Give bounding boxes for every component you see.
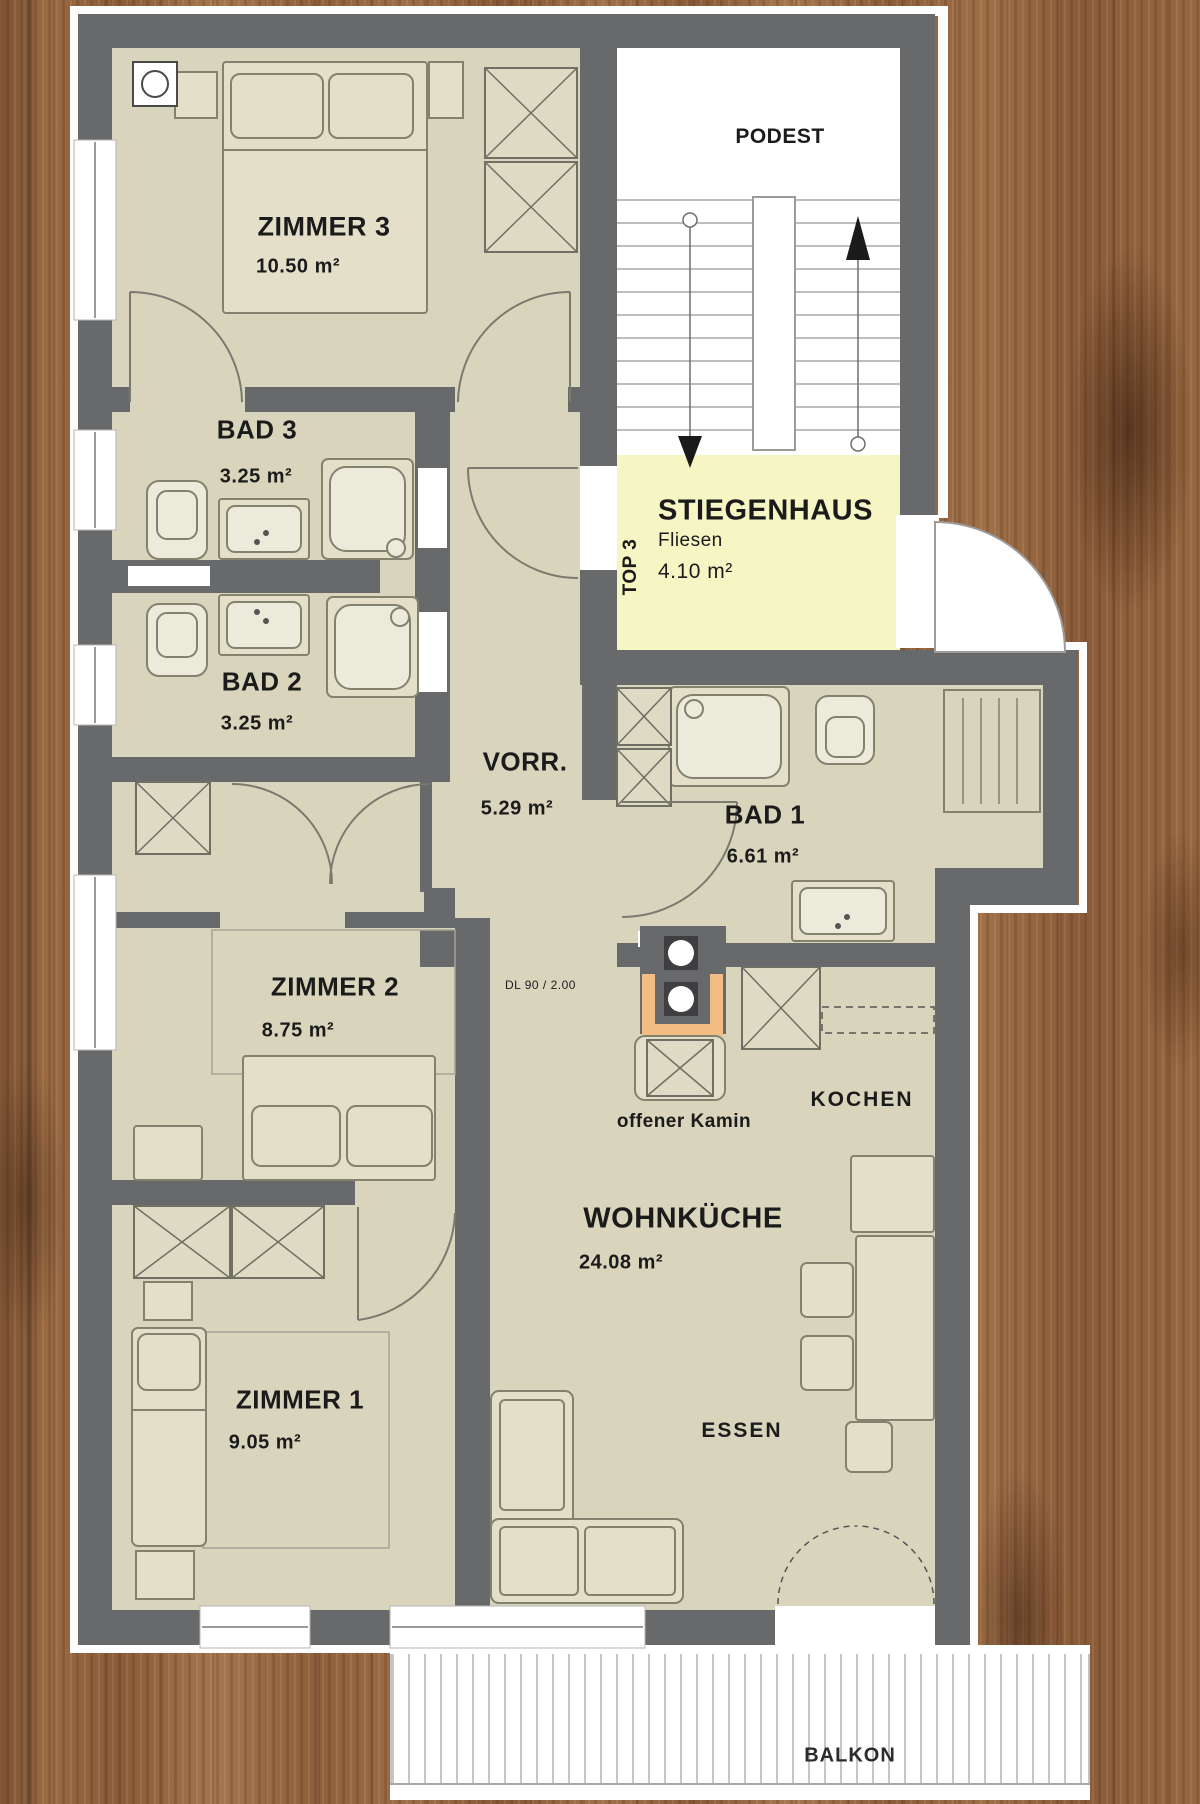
plan-geometry [0,0,1200,1804]
door-spec-label: DL 90 / 2.00 [505,978,576,992]
entry-door-swing [935,522,1065,652]
balcony-label: BALKON [804,1745,896,1768]
stairwell-finish: Fliesen [658,530,723,552]
room-area-bad3: 3.25 m² [220,466,292,489]
cooking-zone-label: KOCHEN [810,1088,913,1112]
dining-zone-label: ESSEN [701,1419,782,1443]
room-area-zimmer3: 10.50 m² [256,256,340,279]
room-area-wohnkueche: 24.08 m² [579,1252,663,1275]
room-area-zimmer2: 8.75 m² [262,1020,334,1043]
room-label-vorraum: VORR. [483,747,568,778]
room-label-wohnkueche: WOHNKÜCHE [583,1203,782,1236]
landing-label: PODEST [735,125,824,149]
room-label-bad2: BAD 2 [222,667,303,698]
room-label-zimmer2: ZIMMER 2 [271,972,399,1003]
room-label-bad1: BAD 1 [725,800,806,831]
unit-label-top3: TOP 3 [620,539,642,596]
room-label-zimmer3: ZIMMER 3 [257,212,390,243]
room-area-vorraum: 5.29 m² [481,798,553,821]
room-area-bad1: 6.61 m² [727,846,799,869]
room-area-zimmer1: 9.05 m² [229,1432,301,1455]
floor-plan: PODEST ZIMMER 3 10.50 m² BAD 3 3.25 m² S… [0,0,1200,1804]
room-label-bad3: BAD 3 [217,415,298,446]
room-label-zimmer1: ZIMMER 1 [236,1385,364,1416]
stairwell-label: STIEGENHAUS [658,495,873,528]
chimney-fireplace [635,926,726,1100]
room-area-bad2: 3.25 m² [221,713,293,736]
stairwell-area: 4.10 m² [658,560,733,584]
fireplace-label: offener Kamin [617,1111,751,1133]
